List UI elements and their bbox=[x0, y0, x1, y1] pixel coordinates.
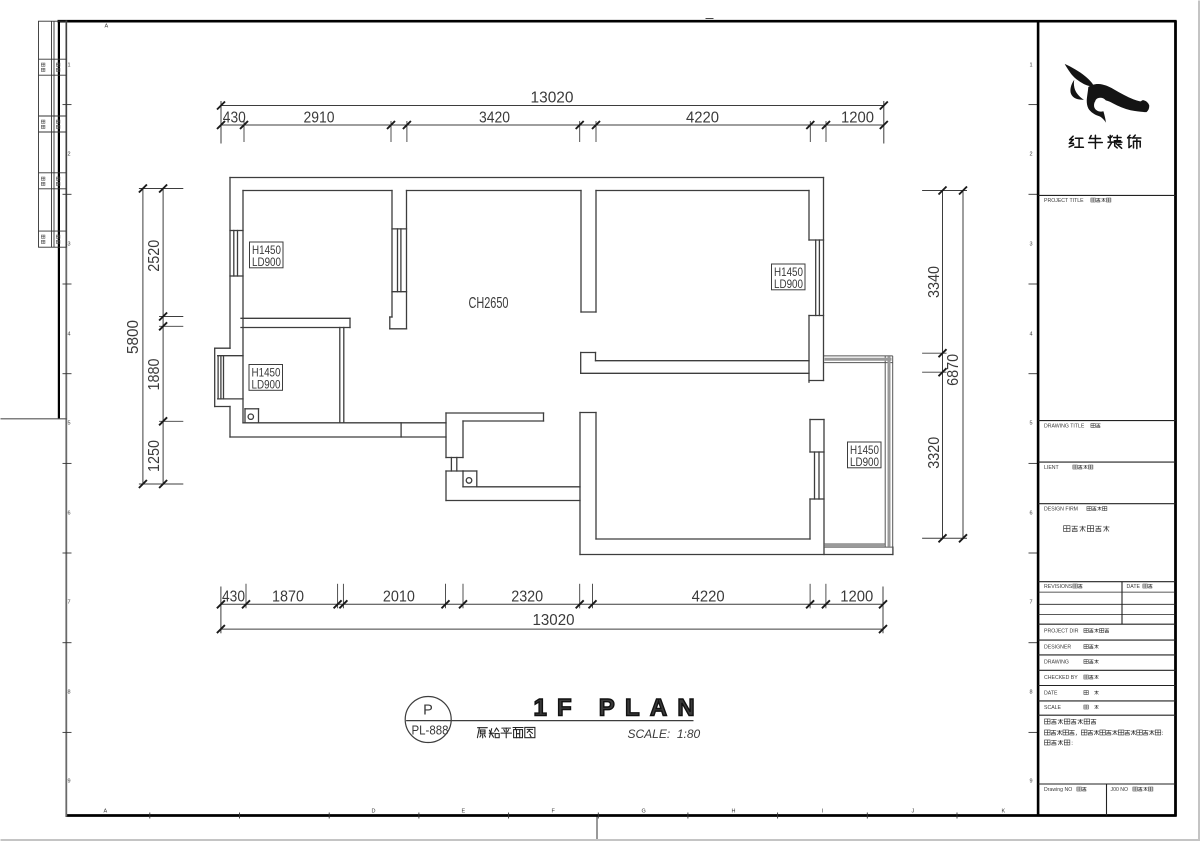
svg-text:1880: 1880 bbox=[146, 358, 163, 390]
svg-text:PROJECT TITLE: PROJECT TITLE bbox=[1044, 198, 1084, 204]
svg-text:SCALE: 1:80: SCALE: 1:80 bbox=[628, 727, 701, 741]
svg-text:A: A bbox=[105, 24, 109, 30]
svg-text:F: F bbox=[552, 809, 556, 815]
svg-text:J: J bbox=[912, 809, 915, 815]
svg-text:G: G bbox=[642, 809, 646, 815]
svg-text:LD900: LD900 bbox=[252, 378, 281, 392]
svg-text:2910: 2910 bbox=[304, 110, 335, 127]
svg-text:6870: 6870 bbox=[945, 354, 962, 386]
svg-text:2: 2 bbox=[68, 152, 71, 158]
svg-text:DATE: DATE bbox=[1044, 691, 1058, 697]
svg-text:4220: 4220 bbox=[686, 110, 719, 127]
svg-text:H: H bbox=[732, 809, 736, 815]
svg-text:K: K bbox=[1002, 809, 1006, 815]
svg-text:7: 7 bbox=[68, 600, 71, 606]
svg-text:Drawing NO: Drawing NO bbox=[1044, 787, 1072, 793]
svg-text:6: 6 bbox=[68, 511, 71, 517]
svg-text:SCALE: SCALE bbox=[1044, 705, 1062, 711]
svg-text:4220: 4220 bbox=[692, 589, 725, 606]
svg-text:2320: 2320 bbox=[511, 589, 543, 606]
svg-text:1: 1 bbox=[68, 63, 71, 69]
svg-text:8: 8 bbox=[1030, 690, 1033, 696]
svg-text:3: 3 bbox=[68, 242, 71, 248]
svg-text:1F PLAN: 1F PLAN bbox=[534, 695, 705, 722]
svg-text:1: 1 bbox=[1030, 63, 1033, 69]
svg-text:430: 430 bbox=[223, 110, 246, 127]
svg-text:E: E bbox=[462, 809, 466, 815]
svg-text:4: 4 bbox=[68, 332, 71, 338]
svg-text:D: D bbox=[372, 809, 376, 815]
svg-text:DESIGNER: DESIGNER bbox=[1044, 645, 1071, 651]
svg-text:1200: 1200 bbox=[841, 110, 874, 127]
svg-text:3420: 3420 bbox=[479, 110, 510, 127]
svg-text:2520: 2520 bbox=[146, 239, 163, 271]
svg-text:3320: 3320 bbox=[926, 436, 943, 468]
svg-text:J00 NO: J00 NO bbox=[1111, 787, 1129, 793]
svg-text:CHECKED BY: CHECKED BY bbox=[1044, 675, 1078, 681]
svg-text:13020: 13020 bbox=[531, 90, 574, 107]
svg-text:6: 6 bbox=[1030, 511, 1033, 517]
svg-text:DRAWING: DRAWING bbox=[1044, 660, 1069, 666]
svg-text:LIENT: LIENT bbox=[1044, 465, 1060, 471]
svg-text:5800: 5800 bbox=[125, 320, 142, 354]
svg-text:9: 9 bbox=[1030, 779, 1033, 785]
svg-text:DESIGN FIRM: DESIGN FIRM bbox=[1044, 507, 1078, 513]
svg-text:3340: 3340 bbox=[926, 266, 943, 298]
svg-text:430: 430 bbox=[222, 589, 245, 606]
svg-text:CH2650: CH2650 bbox=[469, 295, 509, 312]
svg-text:1200: 1200 bbox=[840, 589, 873, 606]
svg-text:13020: 13020 bbox=[533, 612, 575, 629]
svg-text:5: 5 bbox=[1030, 421, 1033, 427]
svg-text:I: I bbox=[822, 809, 824, 815]
svg-text:A: A bbox=[104, 809, 108, 815]
svg-text:4: 4 bbox=[1030, 332, 1033, 338]
svg-text:DRAWING TITLE: DRAWING TITLE bbox=[1044, 424, 1085, 430]
svg-text:DATE: DATE bbox=[1127, 584, 1141, 590]
svg-text:LD900: LD900 bbox=[774, 277, 803, 291]
svg-text:P: P bbox=[423, 703, 433, 719]
svg-text:1250: 1250 bbox=[146, 440, 163, 472]
svg-text:LD900: LD900 bbox=[252, 255, 281, 269]
svg-text:LD900: LD900 bbox=[850, 455, 879, 469]
svg-text:REVISIONS: REVISIONS bbox=[1044, 584, 1073, 590]
svg-text:2: 2 bbox=[1030, 152, 1033, 158]
svg-text:8: 8 bbox=[68, 690, 71, 696]
svg-text:9: 9 bbox=[68, 779, 71, 785]
svg-text:5: 5 bbox=[68, 421, 71, 427]
svg-text:PL-888: PL-888 bbox=[412, 723, 449, 738]
svg-text:7: 7 bbox=[1030, 600, 1033, 606]
svg-text:PROJECT DIR: PROJECT DIR bbox=[1044, 629, 1079, 635]
svg-text:2010: 2010 bbox=[383, 589, 415, 606]
svg-text:1870: 1870 bbox=[272, 589, 304, 606]
svg-text:3: 3 bbox=[1030, 242, 1033, 248]
